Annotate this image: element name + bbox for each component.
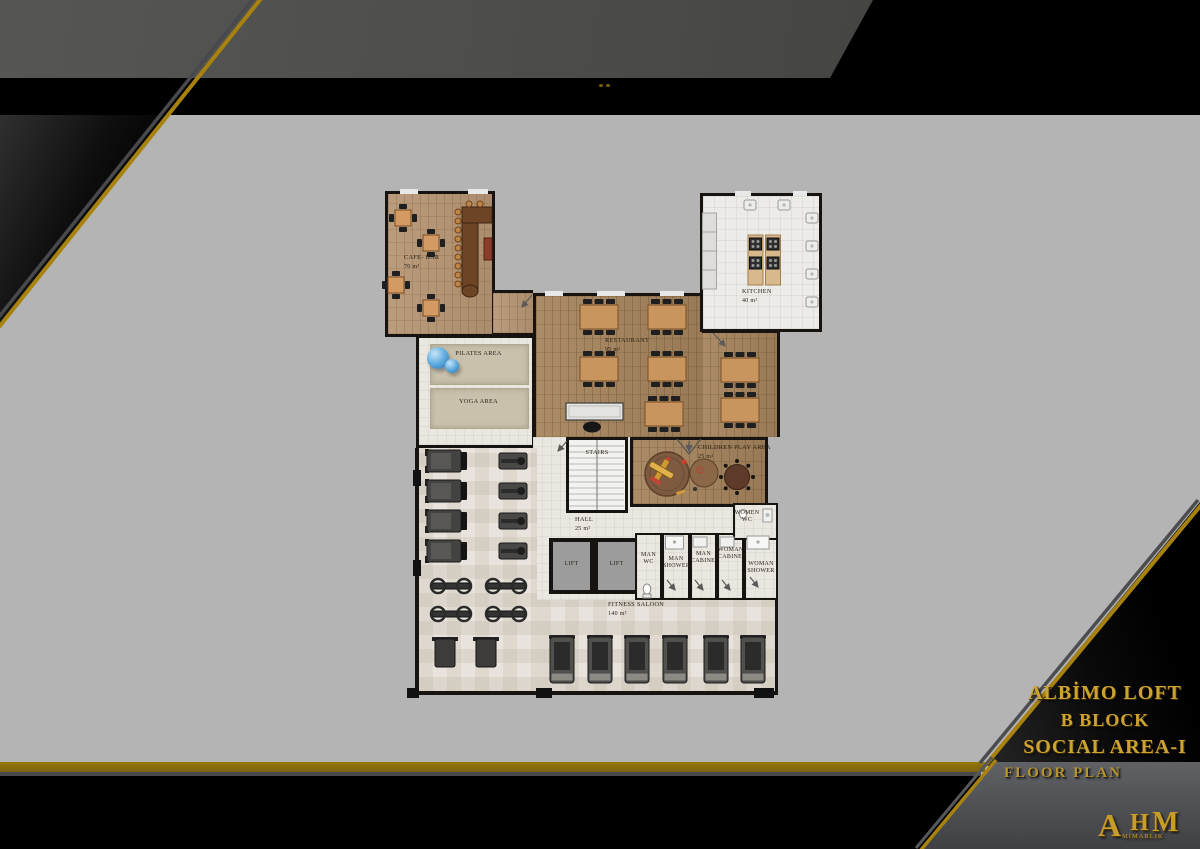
ahm-logo: A MİMARLIK H M	[1098, 800, 1198, 846]
logo-letter-h: H	[1130, 810, 1149, 837]
poster-canvas: CAFE- BAR70 m² RESTAURANT95 m² KITCHEN40…	[0, 0, 1200, 849]
stall-man-cabinet	[690, 533, 717, 600]
fitness-west	[415, 448, 537, 695]
room-label-women-wc: WOMEN WC	[734, 510, 760, 524]
room-label-restaurant: RESTAURANT95 m²	[605, 337, 649, 354]
room-label-man-cabinet: MAN CABINET	[691, 551, 716, 565]
area-title: SOCIAL AREA-I	[1010, 734, 1200, 761]
logo-letter-m: M	[1152, 807, 1178, 839]
floorplan-caption: FLOOR PLAN	[1004, 765, 1122, 782]
room-cafe-bar	[385, 191, 495, 337]
room-restaurant-east	[702, 330, 780, 440]
block-title: B BLOCK	[1010, 707, 1200, 734]
room-label-stairs: STAIRS	[566, 449, 628, 458]
room-label-lift-b: LIFT	[594, 560, 639, 569]
room-kitchen	[700, 193, 822, 332]
room-label-cafe-bar: CAFE- BAR70 m²	[404, 254, 439, 271]
cafe-corridor	[493, 290, 533, 336]
room-label-man-wc: MAN WC	[636, 552, 661, 566]
room-label-fitness: FITNESS SALOON140 m²	[608, 601, 664, 618]
logo-letter-a: A	[1098, 807, 1121, 844]
yoga-mat	[430, 388, 529, 429]
room-label-kitchen: KITCHEN40 m²	[742, 288, 772, 305]
room-label-woman-shower: WOMAN SHOWER	[745, 561, 777, 575]
room-label-yoga: YOGA AREA	[430, 398, 527, 407]
room-restaurant	[533, 293, 705, 440]
room-label-woman-cabinet: WOMAN CABINET	[718, 547, 743, 561]
title-block: ALBİMO LOFT B BLOCK SOCIAL AREA-I	[1010, 680, 1200, 761]
room-label-lift-a: LIFT	[549, 560, 594, 569]
project-title: ALBİMO LOFT	[1010, 680, 1200, 707]
stall-woman-cabinet	[717, 533, 744, 600]
room-label-hall: HALL25 m²	[575, 516, 593, 533]
room-label-man-shower: MAN SHOWER	[663, 556, 689, 570]
room-label-children-play: CHILDREN PLAY AREA25 m²	[698, 444, 771, 461]
pilates-ball-small	[445, 359, 459, 373]
stall-man-wc	[635, 533, 662, 600]
room-label-pilates: PILATES AREA	[430, 350, 527, 359]
